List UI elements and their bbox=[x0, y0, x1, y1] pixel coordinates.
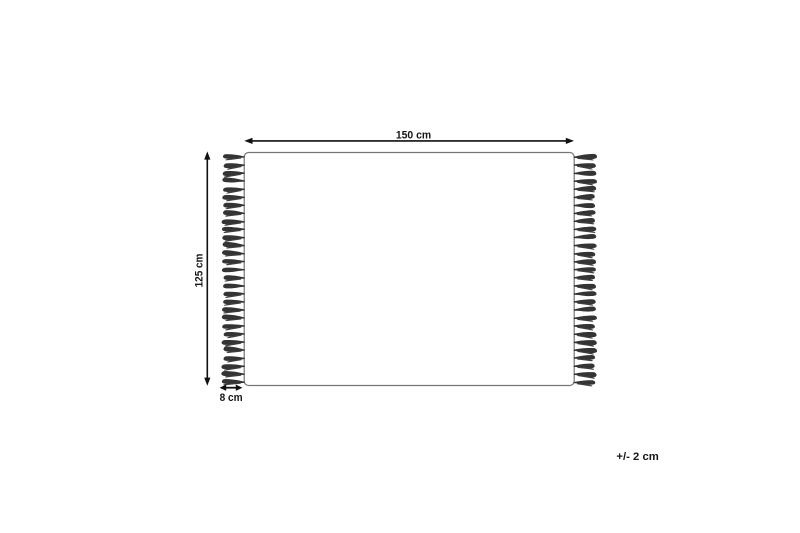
svg-text:150 cm: 150 cm bbox=[396, 130, 432, 142]
svg-text:125 cm: 125 cm bbox=[194, 253, 206, 287]
svg-text:+/- 2 cm: +/- 2 cm bbox=[616, 451, 659, 463]
svg-text:8 cm: 8 cm bbox=[220, 392, 243, 404]
